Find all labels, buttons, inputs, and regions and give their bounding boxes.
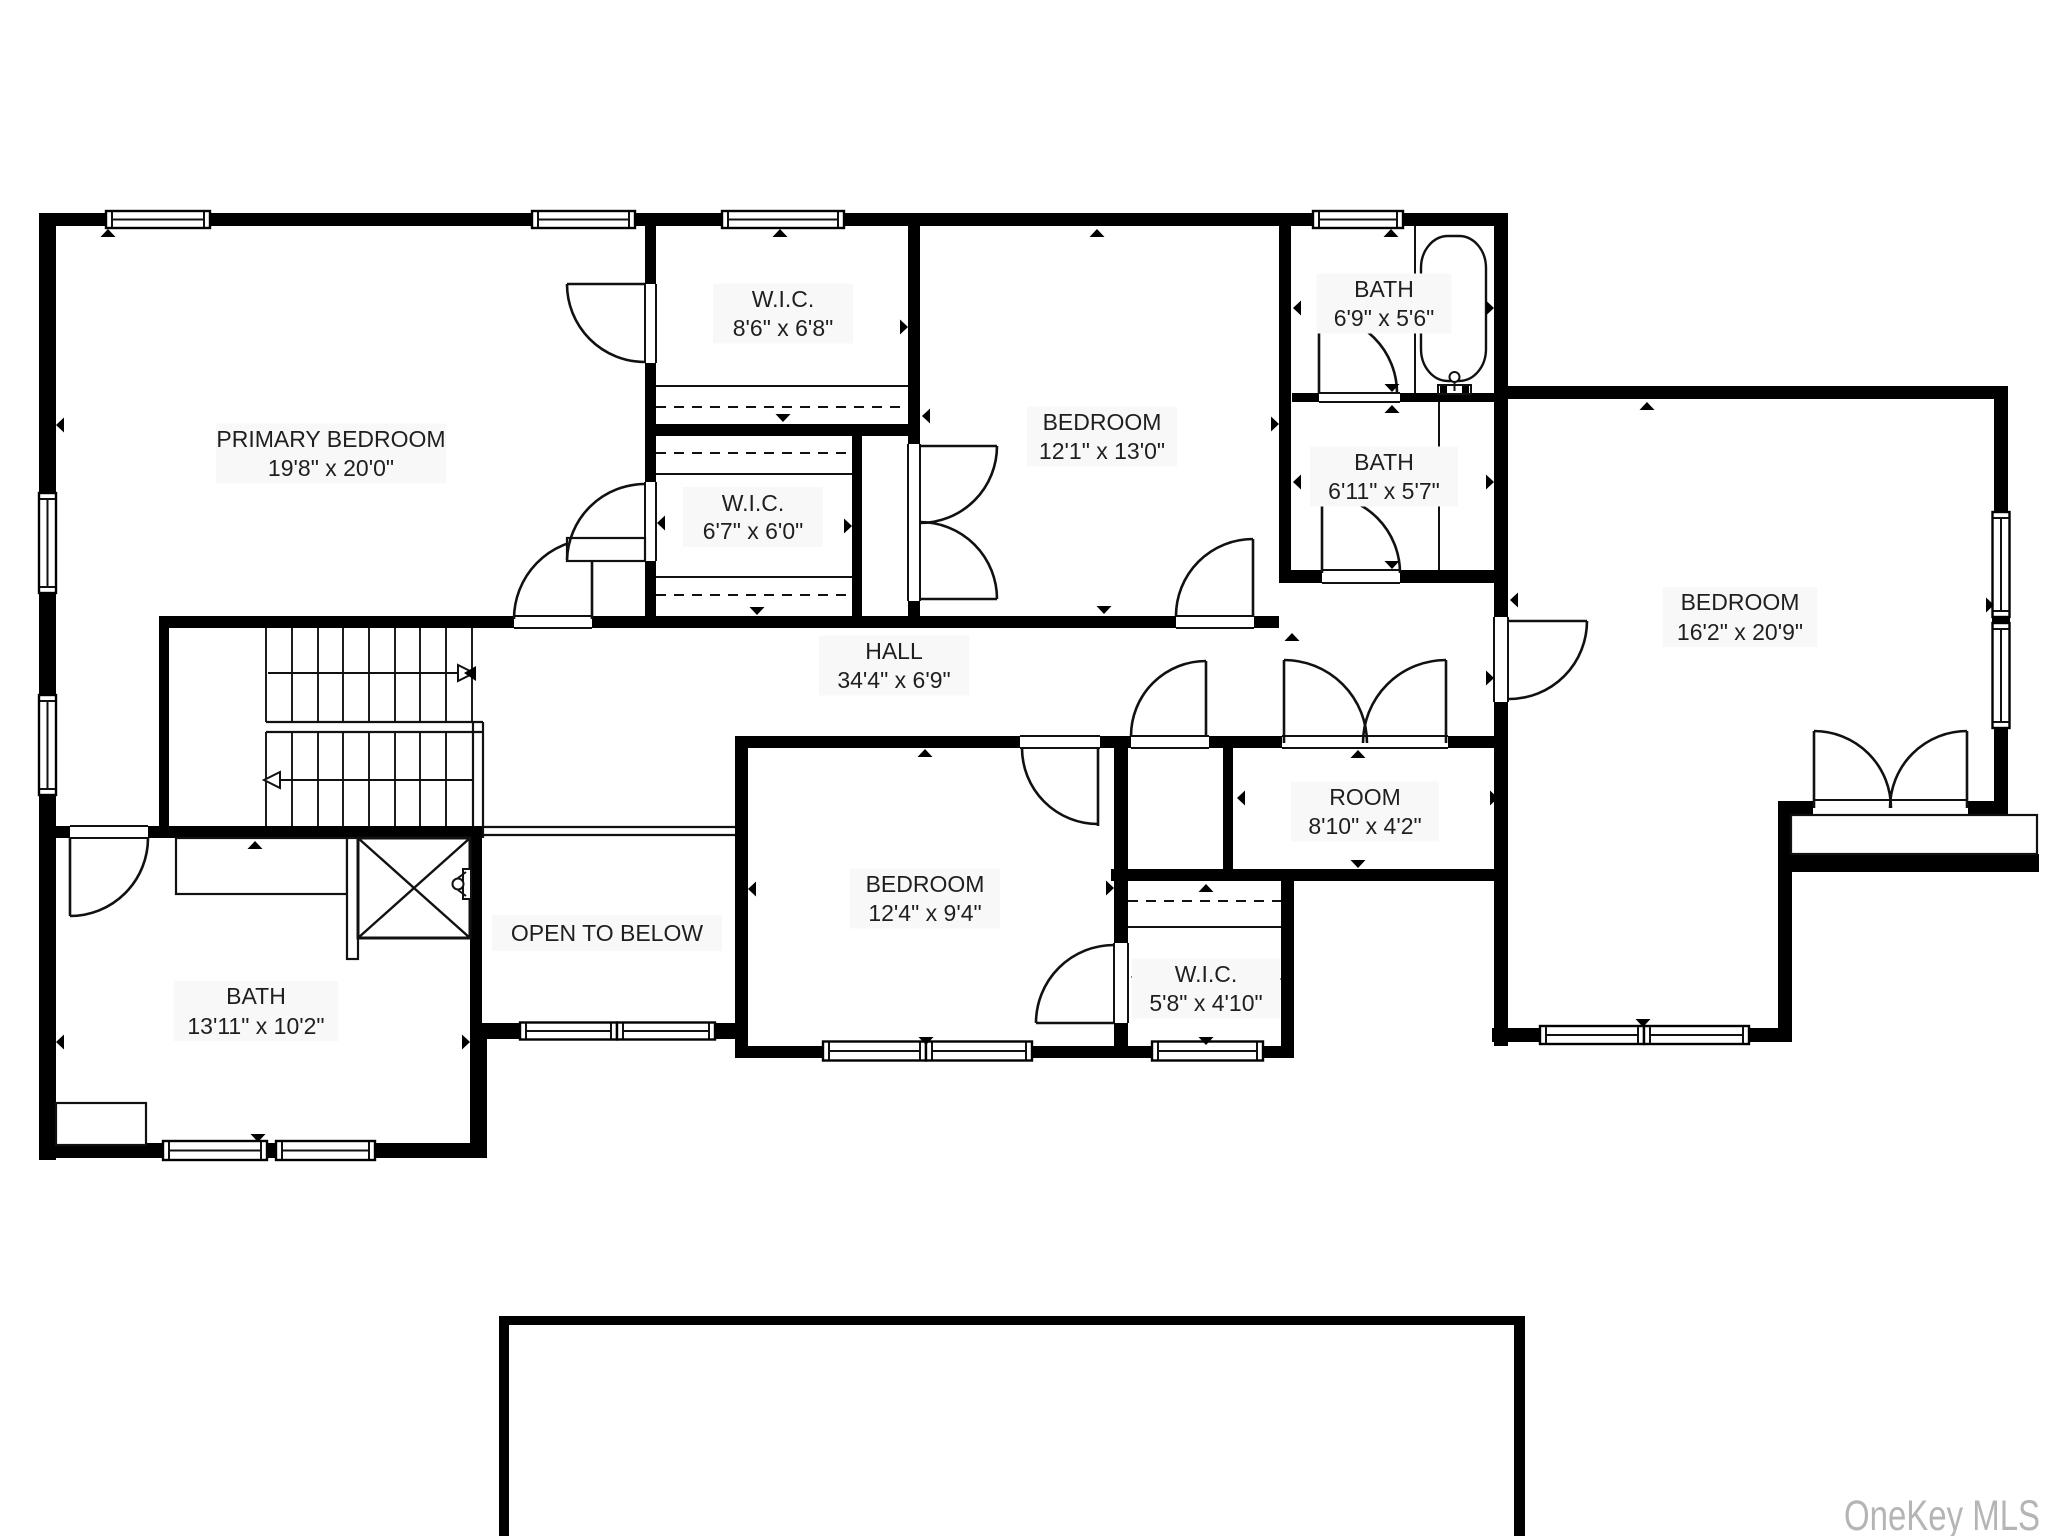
svg-text:OneKey MLS: OneKey MLS — [1844, 1492, 2040, 1536]
svg-text:12'4" x 9'4": 12'4" x 9'4" — [868, 900, 981, 926]
svg-text:8'10" x 4'2": 8'10" x 4'2" — [1308, 813, 1421, 839]
svg-text:OPEN TO BELOW: OPEN TO BELOW — [511, 920, 703, 946]
svg-text:16'2" x 20'9": 16'2" x 20'9" — [1677, 619, 1803, 645]
svg-text:BEDROOM: BEDROOM — [1043, 409, 1162, 435]
svg-text:BATH: BATH — [1354, 276, 1414, 302]
svg-text:BATH: BATH — [226, 983, 286, 1009]
svg-text:6'9" x 5'6": 6'9" x 5'6" — [1334, 305, 1435, 331]
svg-text:W.I.C.: W.I.C. — [1175, 961, 1238, 987]
svg-text:BEDROOM: BEDROOM — [866, 871, 985, 897]
svg-text:W.I.C.: W.I.C. — [752, 286, 815, 312]
svg-text:PRIMARY BEDROOM: PRIMARY BEDROOM — [216, 426, 445, 452]
svg-text:5'8" x 4'10": 5'8" x 4'10" — [1149, 990, 1262, 1016]
svg-text:ROOM: ROOM — [1329, 784, 1401, 810]
svg-text:13'11" x 10'2": 13'11" x 10'2" — [187, 1013, 324, 1039]
svg-text:BATH: BATH — [1354, 449, 1414, 475]
svg-text:8'6" x 6'8": 8'6" x 6'8" — [733, 315, 834, 341]
svg-text:34'4" x 6'9": 34'4" x 6'9" — [837, 667, 950, 693]
svg-text:12'1" x 13'0": 12'1" x 13'0" — [1039, 438, 1165, 464]
svg-text:19'8" x 20'0": 19'8" x 20'0" — [268, 455, 394, 481]
svg-text:HALL: HALL — [865, 638, 923, 664]
svg-text:6'7" x 6'0": 6'7" x 6'0" — [703, 518, 804, 544]
svg-text:W.I.C.: W.I.C. — [722, 490, 785, 516]
svg-text:6'11" x 5'7": 6'11" x 5'7" — [1328, 478, 1440, 504]
svg-text:BEDROOM: BEDROOM — [1681, 589, 1800, 615]
